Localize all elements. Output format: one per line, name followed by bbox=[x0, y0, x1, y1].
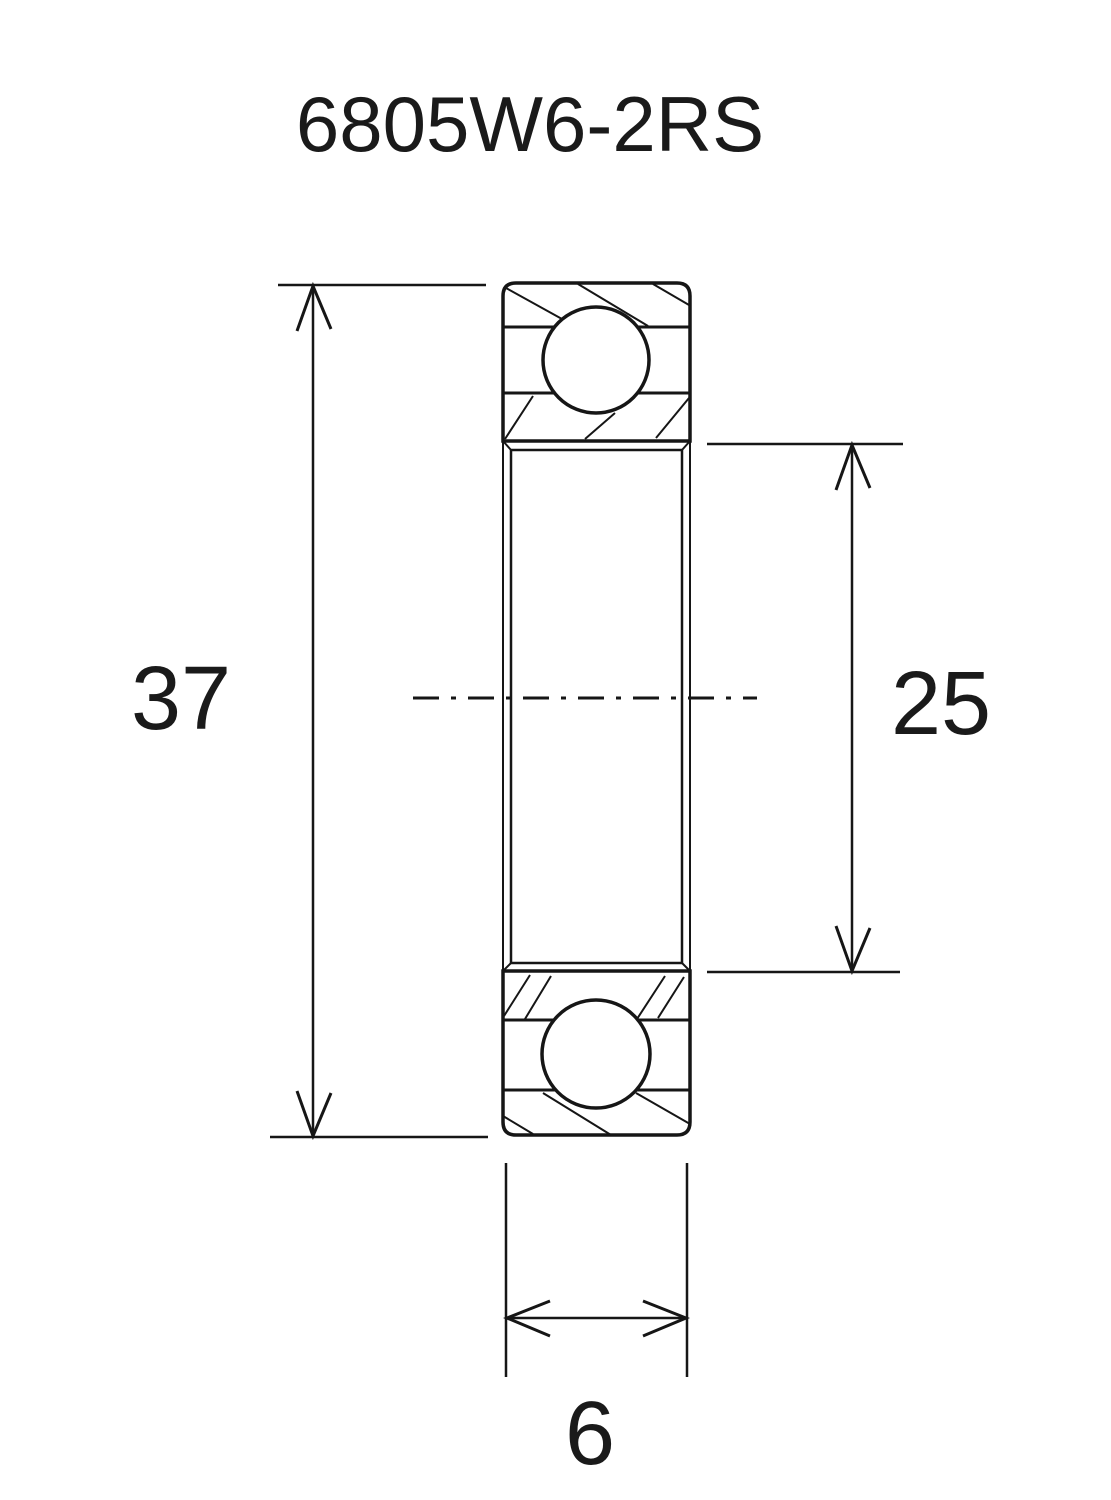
bore-section bbox=[503, 441, 690, 971]
dimension-label-outer-diameter: 37 bbox=[131, 649, 231, 749]
dimension-label-bore-diameter: 25 bbox=[891, 654, 991, 754]
drawing-canvas: 6805W6-2RS bbox=[0, 0, 1111, 1500]
bottom-ball bbox=[542, 1000, 650, 1108]
top-section bbox=[503, 283, 690, 441]
dimension-width: 6 bbox=[506, 1163, 687, 1484]
bore-chamfer-lines bbox=[503, 441, 690, 971]
dimension-bore-diameter: 25 bbox=[707, 444, 991, 972]
part-number-title: 6805W6-2RS bbox=[296, 80, 764, 168]
bore-rectangle bbox=[511, 450, 682, 963]
bottom-section bbox=[503, 971, 690, 1135]
bearing-cross-section bbox=[413, 283, 757, 1135]
drawing-page: 6805W6-2RS bbox=[0, 0, 1111, 1500]
top-ball bbox=[543, 307, 649, 413]
dimension-label-width: 6 bbox=[565, 1384, 615, 1484]
dimension-outer-diameter: 37 bbox=[131, 285, 488, 1137]
